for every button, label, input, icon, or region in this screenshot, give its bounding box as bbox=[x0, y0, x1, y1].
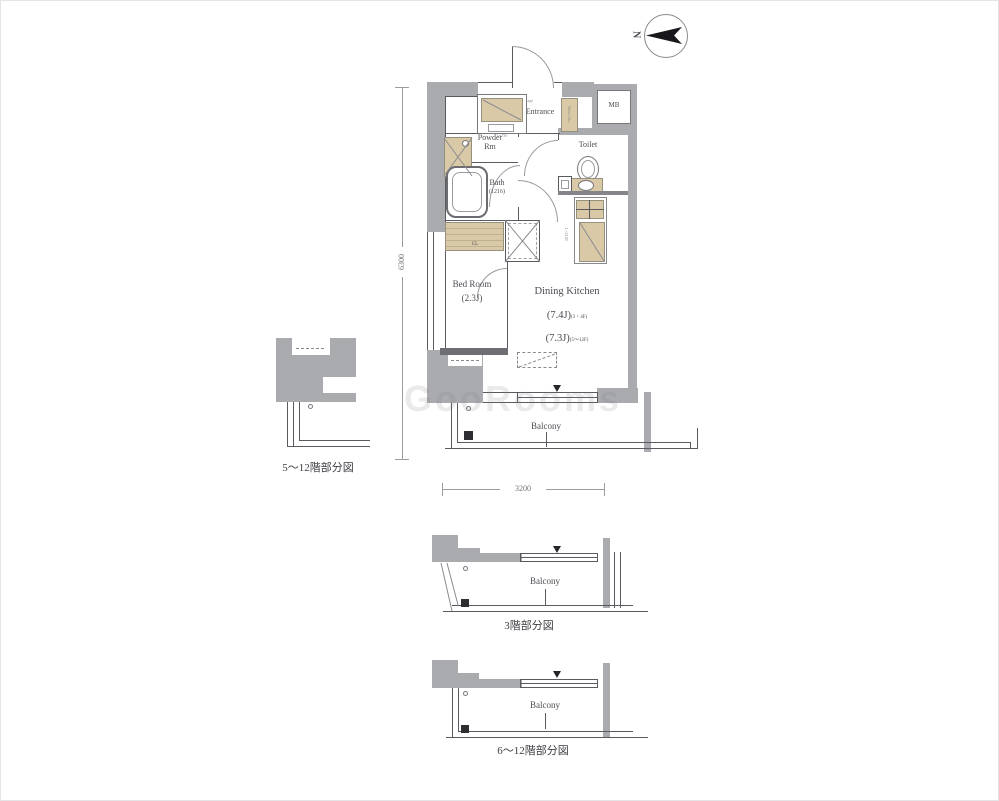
subplan-mid-drain bbox=[461, 599, 469, 607]
subplan-mid-column bbox=[603, 538, 610, 608]
subplan-bottom-leader bbox=[545, 713, 546, 729]
dim-width-label: 3200 bbox=[500, 483, 546, 495]
subplan-bottom-rail bbox=[446, 737, 648, 738]
balcony-rail bbox=[445, 448, 698, 449]
north-label: N bbox=[630, 29, 641, 41]
subplan-bottom-balcony-label: Balcony bbox=[513, 700, 577, 710]
subplan-left-rail bbox=[287, 446, 370, 447]
subplan-mid-balcony-label: Balcony bbox=[513, 576, 577, 586]
subplan-mid-entry-marker bbox=[553, 546, 561, 553]
subplan-mid-track-end bbox=[520, 553, 521, 562]
subplan-bottom-track bbox=[520, 679, 598, 680]
subplan-bottom-wall bbox=[478, 679, 522, 688]
balcony-rail-end bbox=[697, 428, 698, 449]
dim-tick bbox=[604, 483, 605, 496]
subplan-left-vent bbox=[308, 404, 313, 409]
balcony-rail-end bbox=[690, 442, 691, 449]
subplan-bottom-vent bbox=[463, 691, 468, 696]
subplan-bottom-track bbox=[520, 687, 598, 688]
subplan-mid-rail bbox=[614, 552, 615, 608]
subplan-bottom-drain bbox=[461, 725, 469, 733]
balcony-label: Balcony bbox=[514, 421, 578, 431]
fixture-diagonals bbox=[425, 80, 655, 380]
subplan-mid-track bbox=[520, 553, 598, 554]
dim-tick bbox=[442, 483, 443, 496]
dim-tick bbox=[395, 459, 409, 460]
subplan-left-rail bbox=[299, 402, 300, 440]
subplan-bottom-wall bbox=[457, 673, 479, 688]
balcony-rail bbox=[457, 442, 690, 443]
subplan-mid-caption: 3階部分図 bbox=[459, 620, 599, 632]
subplan-mid-vent bbox=[463, 566, 468, 571]
watermark: GooRooms bbox=[404, 378, 622, 420]
subplan-left-wall bbox=[276, 338, 292, 402]
subplan-bottom-column bbox=[603, 663, 610, 738]
subplan-mid-rail bbox=[452, 605, 633, 606]
subplan-bottom-entry-marker bbox=[553, 671, 561, 678]
subplan-left-dash bbox=[296, 348, 324, 350]
subplan-bottom-wall bbox=[432, 660, 458, 688]
subplan-left-rail bbox=[287, 402, 288, 447]
subplan-bottom-track-end bbox=[520, 679, 521, 688]
subplan-mid-track-end bbox=[597, 553, 598, 562]
compass: N bbox=[630, 8, 694, 62]
floorplan-image: N MB Storage Entrance Shoes Clo Powder R… bbox=[0, 0, 999, 801]
subplan-left-rail bbox=[299, 440, 370, 441]
subplan-bottom-rail bbox=[452, 688, 453, 737]
subplan-mid-wall bbox=[478, 553, 522, 562]
subplan-mid-rail bbox=[620, 552, 621, 608]
balcony-leader-line bbox=[546, 432, 547, 447]
subplan-mid-rail bbox=[443, 611, 648, 612]
dim-height-label: 6300 bbox=[396, 247, 408, 277]
subplan-bottom-caption: 6〜12階部分図 bbox=[463, 745, 603, 757]
subplan-left-caption: 5〜12階部分図 bbox=[248, 462, 388, 474]
subplan-mid-track bbox=[520, 557, 598, 558]
subplan-bottom-track bbox=[520, 683, 598, 684]
subplan-left-wall bbox=[292, 355, 356, 377]
subplan-left-wall bbox=[330, 338, 356, 355]
subplan-left-wall bbox=[292, 377, 323, 402]
subplan-left-wall bbox=[323, 393, 356, 402]
balcony-column bbox=[644, 392, 651, 452]
subplan-mid-leader bbox=[545, 589, 546, 605]
balcony-drain bbox=[464, 431, 473, 440]
subplan-bottom-rail bbox=[458, 731, 633, 732]
subplan-left-rail bbox=[293, 402, 294, 446]
subplan-mid-track bbox=[520, 561, 598, 562]
dim-tick bbox=[395, 87, 409, 88]
subplan-mid-wall bbox=[432, 535, 458, 562]
subplan-bottom-rail bbox=[458, 688, 459, 731]
subplan-bottom-track-end bbox=[597, 679, 598, 688]
